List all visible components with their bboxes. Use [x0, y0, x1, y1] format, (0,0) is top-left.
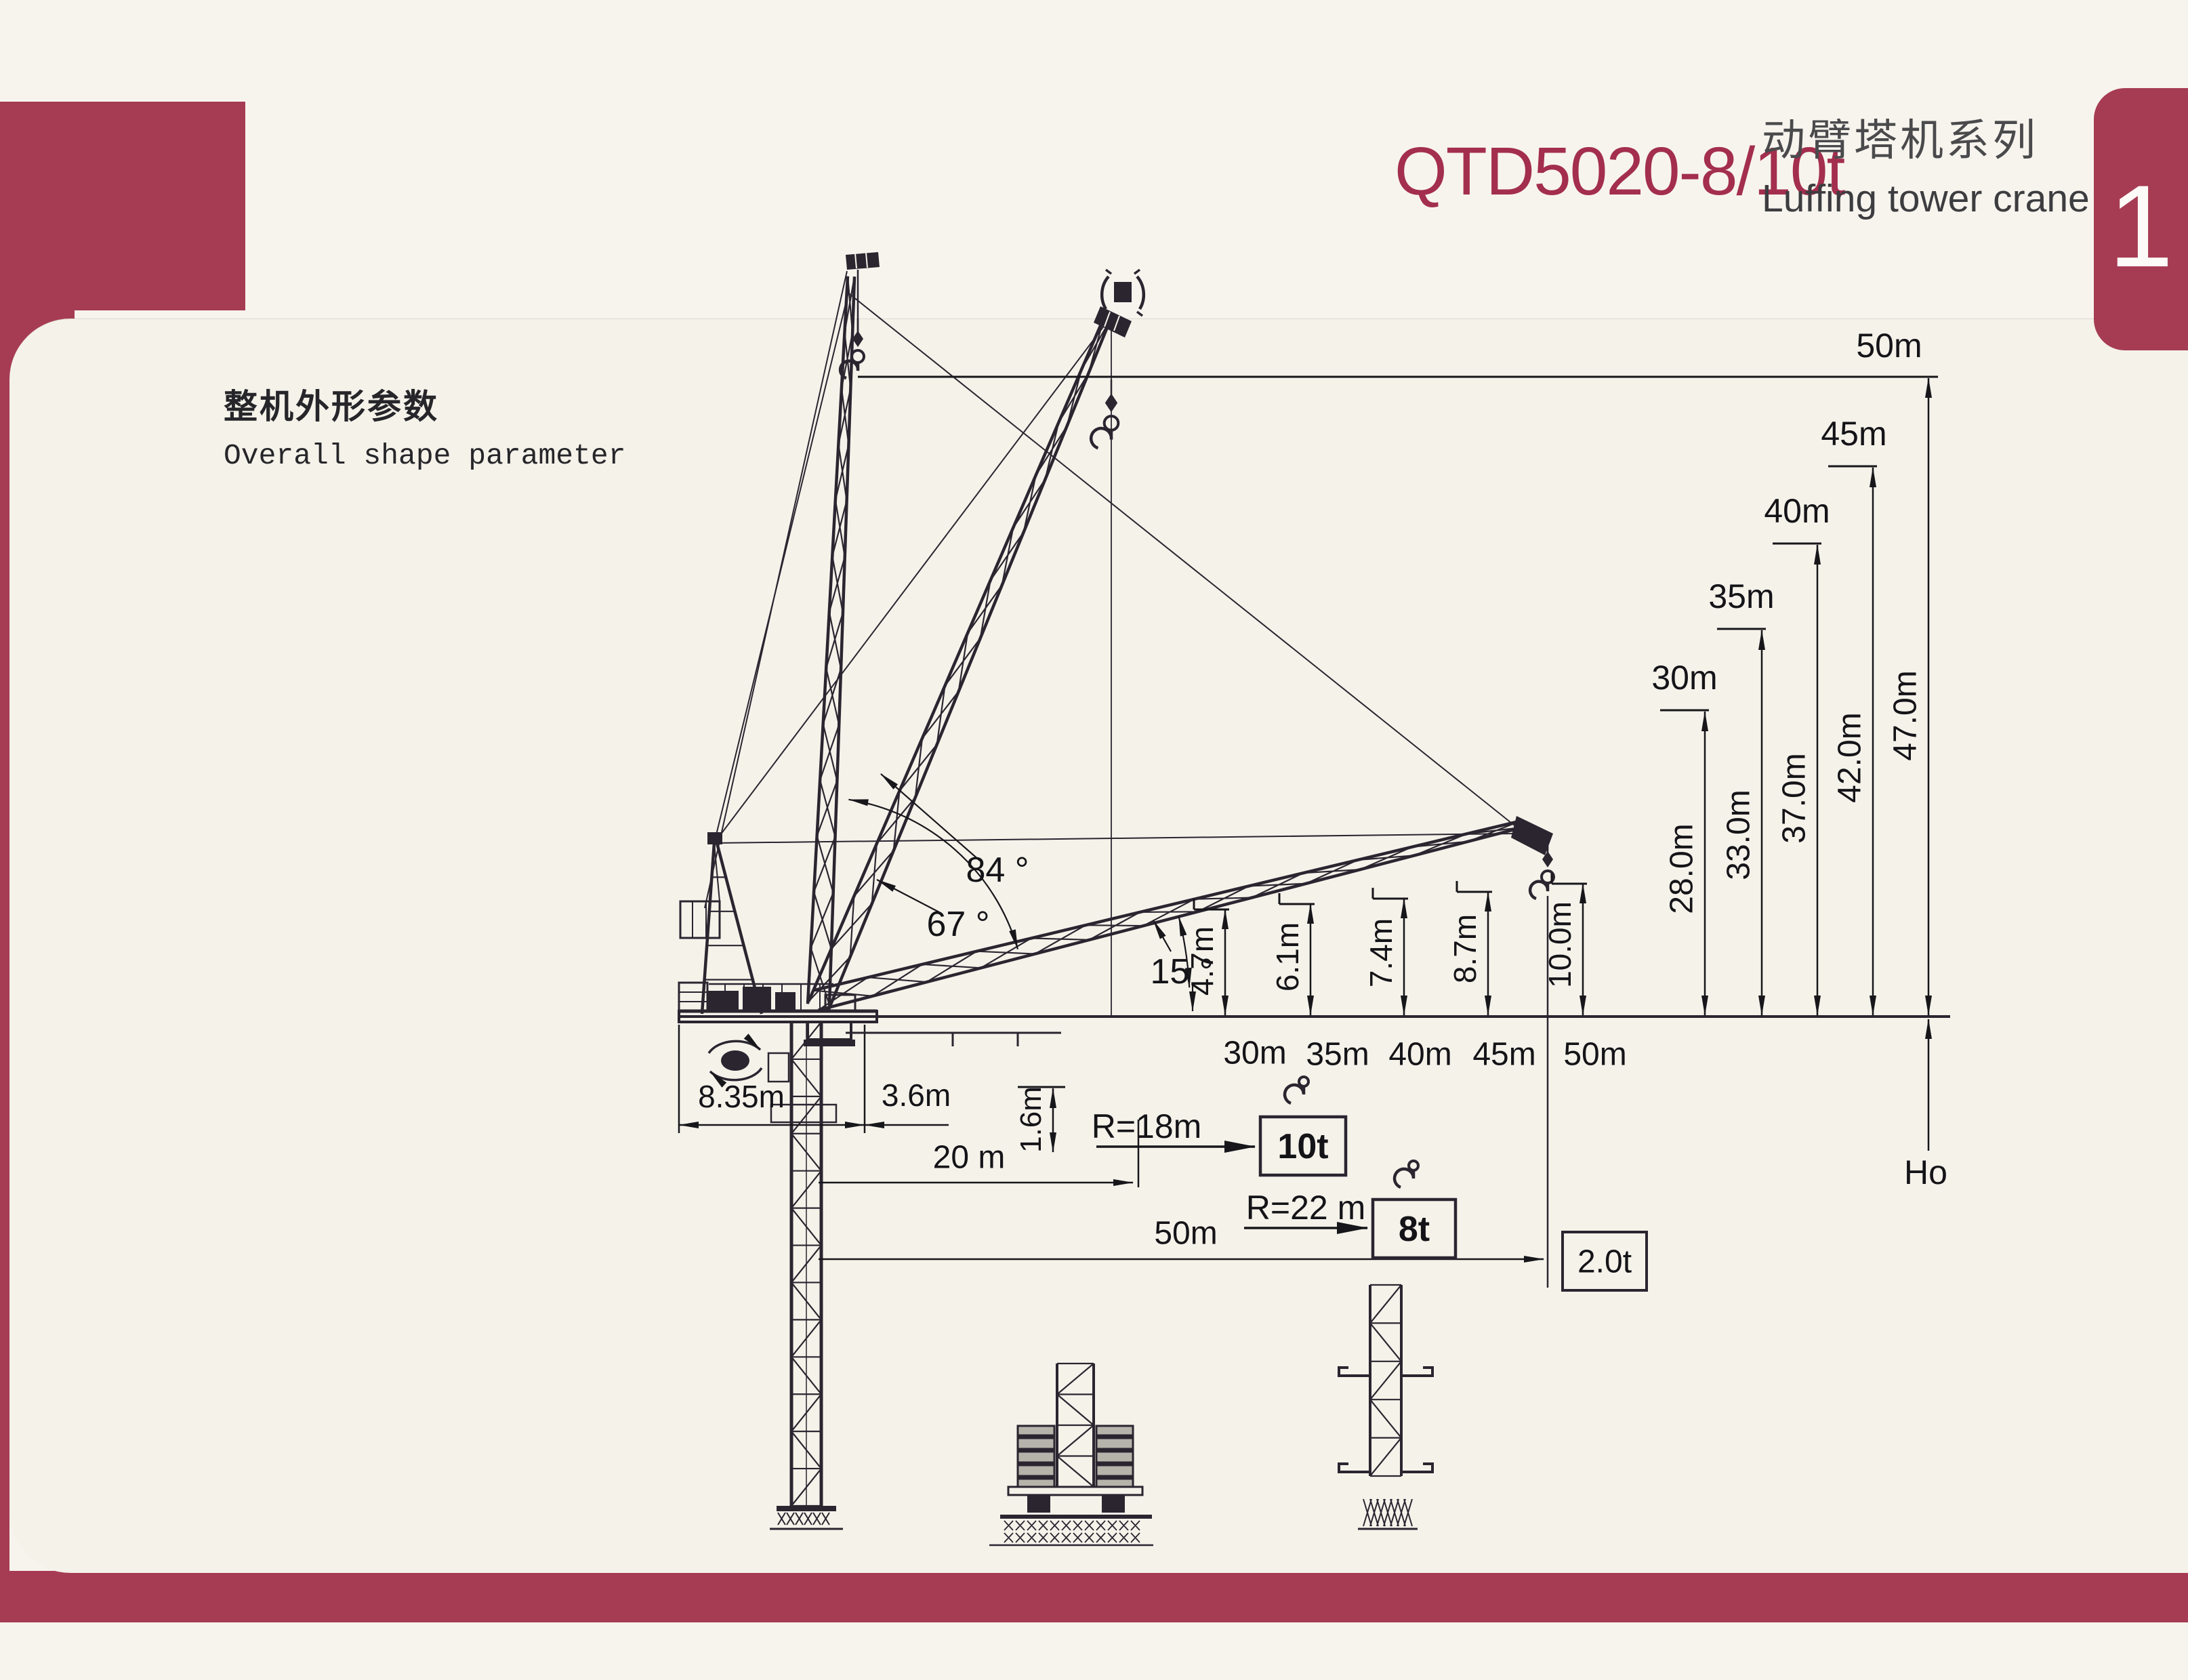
note-r18: R=18m — [1092, 1107, 1202, 1146]
dim-height-28m: 28.0m — [1664, 823, 1701, 914]
dim-radius-45m: 45m — [1821, 414, 1886, 453]
dim-platform-height: 1.6m — [1014, 1086, 1048, 1153]
note-r22: R=22 m — [1246, 1188, 1365, 1227]
catalog-page: { "page": { "badge_number": "1" }, "head… — [0, 0, 2188, 1680]
ground-radius-40m: 40m — [1388, 1036, 1451, 1073]
ground-radius-50m: 50m — [1563, 1036, 1626, 1073]
dim-mid-radius: 20 m — [933, 1139, 1006, 1176]
dim-counterjib-radius: 8.35m — [698, 1078, 785, 1115]
dim-radius-35m: 35m — [1708, 577, 1774, 616]
dim-clearance-7-4: 7.4m — [1363, 918, 1399, 987]
ground-radius-35m: 35m — [1306, 1036, 1369, 1073]
capacity-8t: 8t — [1399, 1209, 1430, 1250]
crane-diagram — [0, 0, 2188, 1680]
dim-height-33m: 33.0m — [1720, 790, 1758, 880]
dim-clearance-10-0: 10.0m — [1542, 901, 1578, 988]
dim-max-radius: 50m — [1154, 1215, 1217, 1252]
dim-radius-50m-top: 50m — [1856, 326, 1922, 365]
rotation-arrows-icon — [709, 1041, 762, 1080]
hook-67-icon — [1091, 380, 1118, 448]
label-ho: Ho — [1904, 1153, 1947, 1192]
dim-height-47m: 47.0m — [1887, 670, 1924, 760]
dim-clearance-8-7: 8.7m — [1447, 914, 1483, 983]
dim-radius-40m: 40m — [1764, 491, 1830, 531]
dim-clearance-6-1: 6.1m — [1269, 922, 1306, 991]
capacity-10t: 10t — [1277, 1126, 1328, 1167]
angle-15: 15 ° — [1150, 951, 1213, 992]
dim-height-42m: 42.0m — [1832, 712, 1869, 802]
dim-rear-offset: 3.6m — [882, 1077, 951, 1113]
dim-height-37m: 37.0m — [1776, 753, 1813, 843]
hook-icon — [0, 0, 1308, 1103]
capacity-tip-2t: 2.0t — [1577, 1244, 1632, 1281]
pulley-block-icon — [1102, 270, 1144, 316]
angle-67: 67 ° — [926, 904, 989, 945]
ground-radius-30m: 30m — [1223, 1035, 1286, 1072]
angle-84: 84 ° — [966, 850, 1029, 890]
dim-radius-30m: 30m — [1651, 658, 1717, 697]
ground-radius-45m: 45m — [1472, 1036, 1535, 1073]
